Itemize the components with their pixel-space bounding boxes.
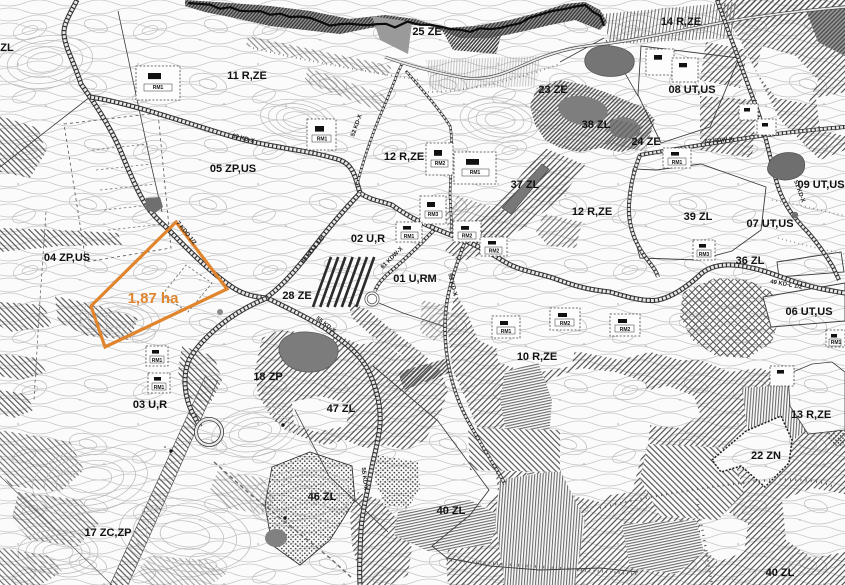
svg-text:10 R,ZE: 10 R,ZE [517, 351, 557, 363]
svg-text:RM3: RM3 [428, 212, 439, 218]
svg-text:01 U,RM: 01 U,RM [393, 273, 436, 285]
svg-text:RM1: RM1 [154, 385, 165, 391]
svg-text:RM2: RM2 [435, 161, 446, 167]
svg-text:RM1: RM1 [831, 340, 842, 346]
svg-text:06 UT,US: 06 UT,US [785, 306, 832, 318]
svg-text:24 ZE: 24 ZE [631, 136, 660, 148]
svg-text:05 ZP,US: 05 ZP,US [210, 163, 256, 175]
svg-text:38 ZL: 38 ZL [582, 119, 611, 131]
svg-text:RM1: RM1 [501, 329, 512, 335]
svg-text:13 R,ZE: 13 R,ZE [791, 409, 831, 421]
svg-text:RM3: RM3 [699, 252, 710, 258]
svg-text:25 ZE: 25 ZE [412, 26, 441, 38]
svg-text:17 ZC,ZP: 17 ZC,ZP [84, 527, 131, 539]
svg-text:28 ZE: 28 ZE [282, 290, 311, 302]
svg-text:09 UT,US: 09 UT,US [797, 179, 844, 191]
svg-text:03 U,R: 03 U,R [133, 399, 167, 411]
svg-text:12 R,ZE: 12 R,ZE [384, 151, 424, 163]
svg-text:RM1: RM1 [672, 160, 683, 166]
svg-text:39 ZL: 39 ZL [684, 211, 713, 223]
svg-text:18 ZP: 18 ZP [253, 371, 282, 383]
svg-text:12 R,ZE: 12 R,ZE [572, 206, 612, 218]
svg-text:46 ZL: 46 ZL [308, 491, 337, 503]
svg-text:RM2: RM2 [462, 233, 473, 239]
svg-text:04 ZP,US: 04 ZP,US [44, 252, 90, 264]
svg-text:40 ZL: 40 ZL [437, 505, 466, 517]
svg-text:02 U,R: 02 U,R [351, 233, 385, 245]
svg-text:07 UT,US: 07 UT,US [746, 218, 793, 230]
svg-text:ZL: ZL [0, 42, 14, 54]
svg-text:RM2: RM2 [560, 321, 571, 327]
svg-text:RM1: RM1 [317, 137, 328, 143]
svg-text:1,87 ha: 1,87 ha [128, 290, 180, 307]
svg-text:08 UT,US: 08 UT,US [668, 84, 715, 96]
svg-text:37 ZL: 37 ZL [511, 179, 540, 191]
svg-text:RM2: RM2 [489, 248, 500, 254]
svg-text:RM1: RM1 [404, 234, 415, 240]
svg-text:RM1: RM1 [470, 170, 481, 176]
svg-text:RM1: RM1 [153, 85, 164, 91]
svg-text:36 ZL: 36 ZL [736, 255, 765, 267]
svg-text:47 ZL: 47 ZL [327, 403, 356, 415]
svg-text:40 ZL: 40 ZL [766, 567, 795, 579]
svg-text:14 R,ZE: 14 R,ZE [661, 16, 701, 28]
svg-text:11 R,ZE: 11 R,ZE [227, 70, 267, 82]
svg-text:23 ZE: 23 ZE [538, 84, 567, 96]
svg-text:RM2: RM2 [620, 327, 631, 333]
svg-text:22 ZN: 22 ZN [751, 450, 781, 462]
svg-text:RM1: RM1 [152, 358, 163, 364]
